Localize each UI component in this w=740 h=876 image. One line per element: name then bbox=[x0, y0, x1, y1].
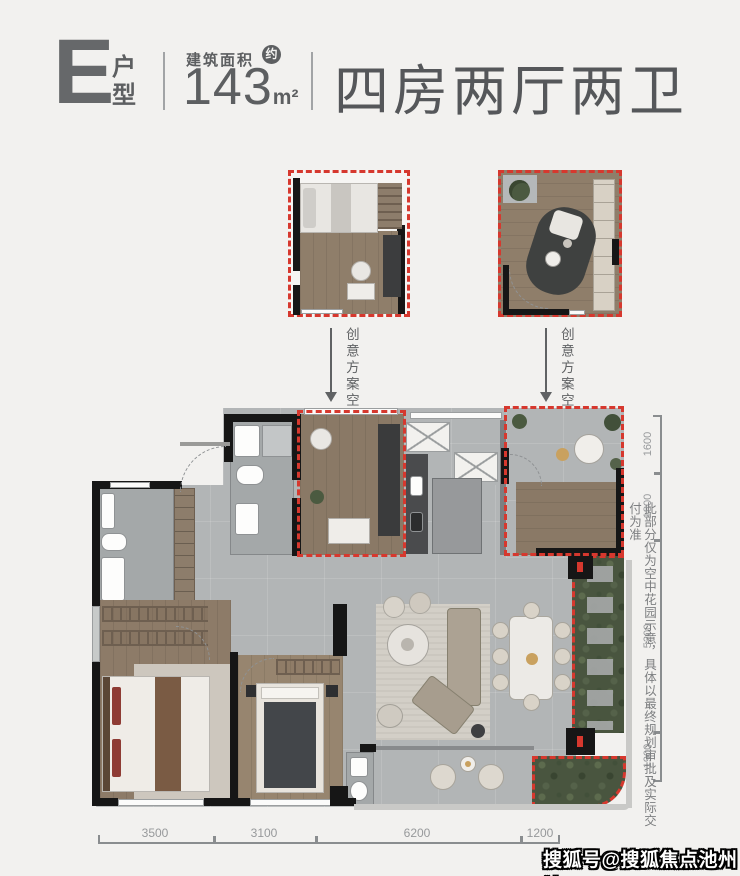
kitchen-island bbox=[432, 478, 482, 554]
window bbox=[92, 606, 100, 662]
dining-area bbox=[492, 604, 572, 714]
window bbox=[301, 309, 343, 314]
window bbox=[410, 412, 502, 419]
hall-closet bbox=[174, 488, 195, 605]
kitchen-top-cabinets bbox=[406, 422, 450, 452]
table-decor bbox=[401, 638, 414, 651]
header-divider-2 bbox=[311, 52, 313, 110]
area-unit: m² bbox=[273, 86, 299, 109]
inset2-tray bbox=[563, 239, 572, 248]
bed-runner bbox=[155, 677, 181, 791]
dining-table bbox=[509, 616, 553, 700]
inset1-tv-console bbox=[383, 235, 401, 297]
wall-segment bbox=[330, 786, 348, 806]
dining-chair bbox=[554, 648, 571, 665]
corner-garden bbox=[532, 756, 626, 808]
main-floorplan bbox=[88, 400, 638, 812]
sink bbox=[350, 757, 368, 777]
watermark: 搜狐号@搜狐焦点池州站 bbox=[543, 845, 740, 876]
dim-right-1600: 1600 bbox=[642, 432, 654, 456]
bathtub bbox=[101, 557, 125, 601]
entry-door-arc bbox=[180, 446, 226, 492]
red-marker bbox=[577, 736, 583, 747]
wall-segment bbox=[204, 798, 250, 806]
wall-segment bbox=[293, 178, 300, 271]
ruler-cap bbox=[558, 835, 560, 844]
creative-option-bedroom-inset bbox=[288, 170, 410, 317]
dining-chair bbox=[492, 622, 509, 639]
cooktop bbox=[410, 512, 423, 532]
wall-segment bbox=[293, 285, 300, 315]
fruit-bowl bbox=[465, 761, 471, 767]
inset1-bed bbox=[300, 183, 378, 233]
wall-segment bbox=[360, 744, 376, 752]
sink bbox=[410, 476, 423, 496]
coffee-table bbox=[387, 624, 429, 666]
dining-chair bbox=[554, 674, 571, 691]
wardrobe-hatch bbox=[102, 606, 208, 622]
inset1-wardrobe bbox=[378, 183, 402, 229]
ruler-tick bbox=[213, 836, 216, 844]
creative-zone-1-outline bbox=[297, 410, 406, 557]
bed-2 bbox=[256, 683, 324, 793]
stool bbox=[430, 764, 456, 790]
ruler-line bbox=[98, 842, 560, 844]
area-number: 143 bbox=[183, 58, 273, 116]
headboard bbox=[103, 677, 110, 791]
stepping-stones bbox=[587, 566, 613, 730]
dining-chair bbox=[492, 674, 509, 691]
window bbox=[110, 482, 150, 488]
inset1-chair bbox=[351, 261, 371, 281]
utility-box bbox=[568, 555, 593, 579]
wall-segment bbox=[92, 798, 118, 806]
sink bbox=[235, 503, 259, 535]
wall-segment bbox=[228, 414, 296, 422]
inset2-table bbox=[545, 251, 561, 267]
creative-option-study-inset bbox=[498, 170, 622, 317]
red-pillow bbox=[112, 739, 121, 777]
wall-segment bbox=[92, 488, 100, 606]
header-divider-1 bbox=[163, 52, 165, 110]
dim-bottom-1200: 1200 bbox=[527, 826, 554, 840]
duvet bbox=[264, 702, 316, 788]
unit-type-label: 户型 bbox=[112, 54, 138, 111]
dim-bottom-3100: 3100 bbox=[251, 826, 278, 840]
dining-chair bbox=[492, 648, 509, 665]
outer-boundary bbox=[354, 804, 630, 810]
red-marker bbox=[577, 562, 583, 572]
ruler-tick bbox=[315, 836, 318, 844]
master-bedroom bbox=[100, 600, 231, 805]
terrace-rail bbox=[374, 746, 534, 750]
red-pillow bbox=[112, 687, 121, 725]
master-bed bbox=[102, 676, 210, 792]
ruler-tick bbox=[654, 472, 662, 475]
area-value: 143m² bbox=[183, 57, 298, 117]
wall-segment bbox=[612, 239, 619, 265]
sky-garden-strip bbox=[572, 555, 624, 733]
ruler-line bbox=[660, 415, 662, 782]
duvet-fold bbox=[331, 184, 351, 232]
living-room bbox=[373, 596, 493, 746]
plant bbox=[509, 180, 530, 201]
ruler-tick bbox=[520, 836, 523, 844]
creative-arrow-2 bbox=[545, 328, 547, 392]
shower bbox=[262, 425, 292, 457]
dining-chair bbox=[554, 622, 571, 639]
layout-description: 四房两厅两卫 bbox=[334, 46, 688, 126]
ruler-cap bbox=[653, 415, 662, 417]
lower-terrace bbox=[374, 750, 534, 805]
stool bbox=[478, 764, 504, 790]
side-table bbox=[460, 756, 476, 772]
pouf bbox=[383, 596, 405, 618]
kitchen bbox=[406, 420, 502, 555]
window bbox=[118, 799, 204, 806]
bathroom-1 bbox=[98, 488, 174, 605]
inset1-desk bbox=[347, 283, 375, 300]
vanity-sink bbox=[101, 493, 115, 529]
wardrobe-hatch bbox=[276, 659, 340, 675]
kitchen-counter bbox=[406, 454, 428, 554]
wall-segment bbox=[503, 265, 509, 315]
creative-arrow-1 bbox=[330, 328, 332, 392]
unit-letter: E bbox=[53, 30, 114, 115]
wall-segment bbox=[92, 662, 100, 806]
pillow bbox=[303, 188, 316, 228]
nightstand bbox=[326, 685, 338, 697]
door-threshold bbox=[569, 310, 585, 315]
utility-box bbox=[566, 728, 595, 755]
ruler-cap bbox=[98, 835, 100, 844]
dim-bottom-3500: 3500 bbox=[142, 826, 169, 840]
wall-segment bbox=[503, 309, 569, 315]
toilet bbox=[101, 533, 127, 551]
creative-zone-2-outline bbox=[504, 406, 624, 556]
toilet bbox=[236, 465, 264, 485]
centerpiece bbox=[526, 653, 538, 665]
pouf bbox=[409, 592, 431, 614]
sky-garden-disclaimer: 此部分仅为空中花园示意，具体以最终规划审批及实际交付为准 bbox=[626, 502, 656, 836]
wall-segment bbox=[230, 652, 238, 806]
dim-bottom-6200: 6200 bbox=[404, 826, 431, 840]
dining-chair bbox=[523, 694, 540, 711]
floorplan-page: E 户型 建筑面积 约 143m² 四房两厅两卫 bbox=[0, 0, 740, 876]
dining-chair bbox=[523, 602, 540, 619]
window bbox=[250, 799, 332, 806]
bathroom-2 bbox=[230, 420, 294, 555]
floor-plant bbox=[471, 724, 485, 738]
header: E 户型 建筑面积 约 143m² 四房两厅两卫 bbox=[0, 0, 740, 140]
washer bbox=[234, 425, 260, 457]
armchair bbox=[377, 704, 403, 728]
wall-segment bbox=[333, 604, 347, 656]
